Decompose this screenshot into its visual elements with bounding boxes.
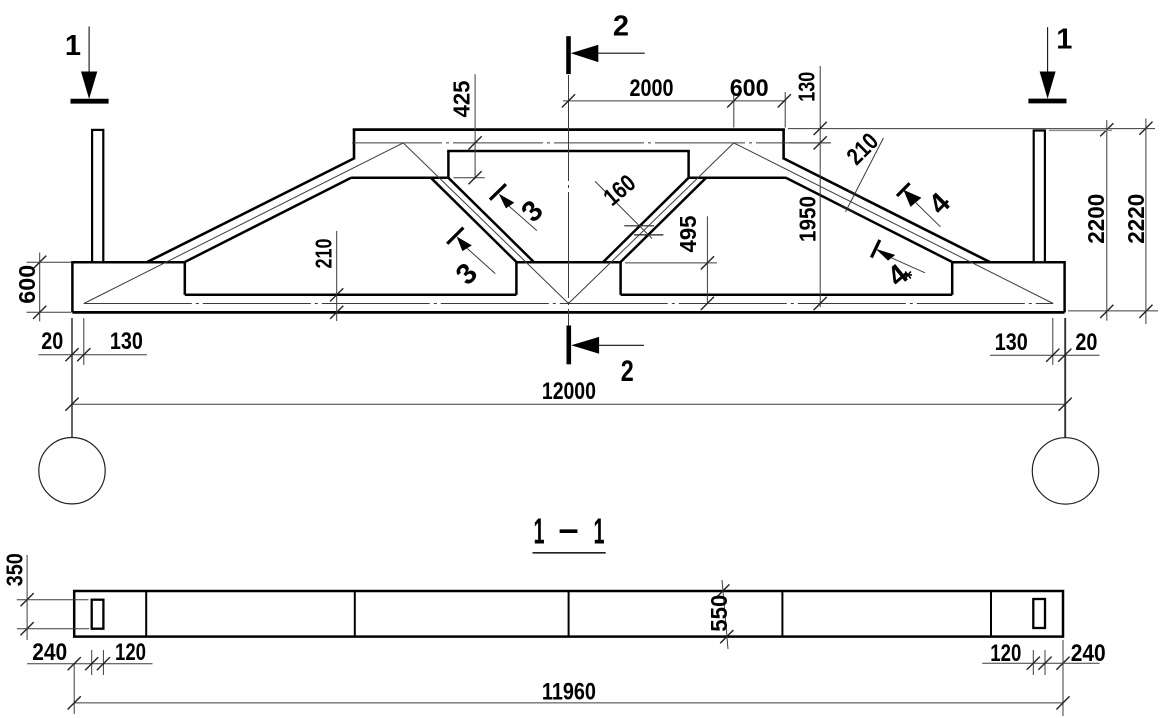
svg-text:240: 240 [1071,640,1106,667]
svg-text:600: 600 [730,75,769,102]
svg-text:2200: 2200 [1083,194,1109,244]
svg-text:2000: 2000 [630,75,674,102]
svg-text:–: – [558,508,578,549]
svg-text:130: 130 [794,72,820,102]
svg-text:120: 120 [990,640,1021,667]
svg-text:240: 240 [32,639,67,666]
svg-text:1950: 1950 [795,196,821,242]
svg-text:495: 495 [675,215,701,252]
svg-text:20: 20 [1075,329,1097,356]
svg-text:1: 1 [65,30,81,62]
svg-text:1: 1 [594,510,605,551]
svg-text:425: 425 [449,80,475,117]
svg-text:350: 350 [2,553,28,586]
svg-text:600: 600 [14,265,40,304]
svg-text:11960: 11960 [542,679,596,706]
svg-text:1: 1 [534,510,545,551]
svg-text:2: 2 [613,11,629,43]
svg-text:550: 550 [706,595,732,632]
svg-text:130: 130 [110,328,143,355]
svg-text:130: 130 [995,329,1028,356]
svg-text:2: 2 [621,355,634,388]
svg-text:210: 210 [311,239,337,269]
svg-text:1: 1 [1056,24,1072,56]
svg-text:120: 120 [115,639,146,666]
svg-text:2220: 2220 [1123,194,1149,244]
svg-text:12000: 12000 [542,378,596,405]
svg-text:20: 20 [41,328,63,355]
